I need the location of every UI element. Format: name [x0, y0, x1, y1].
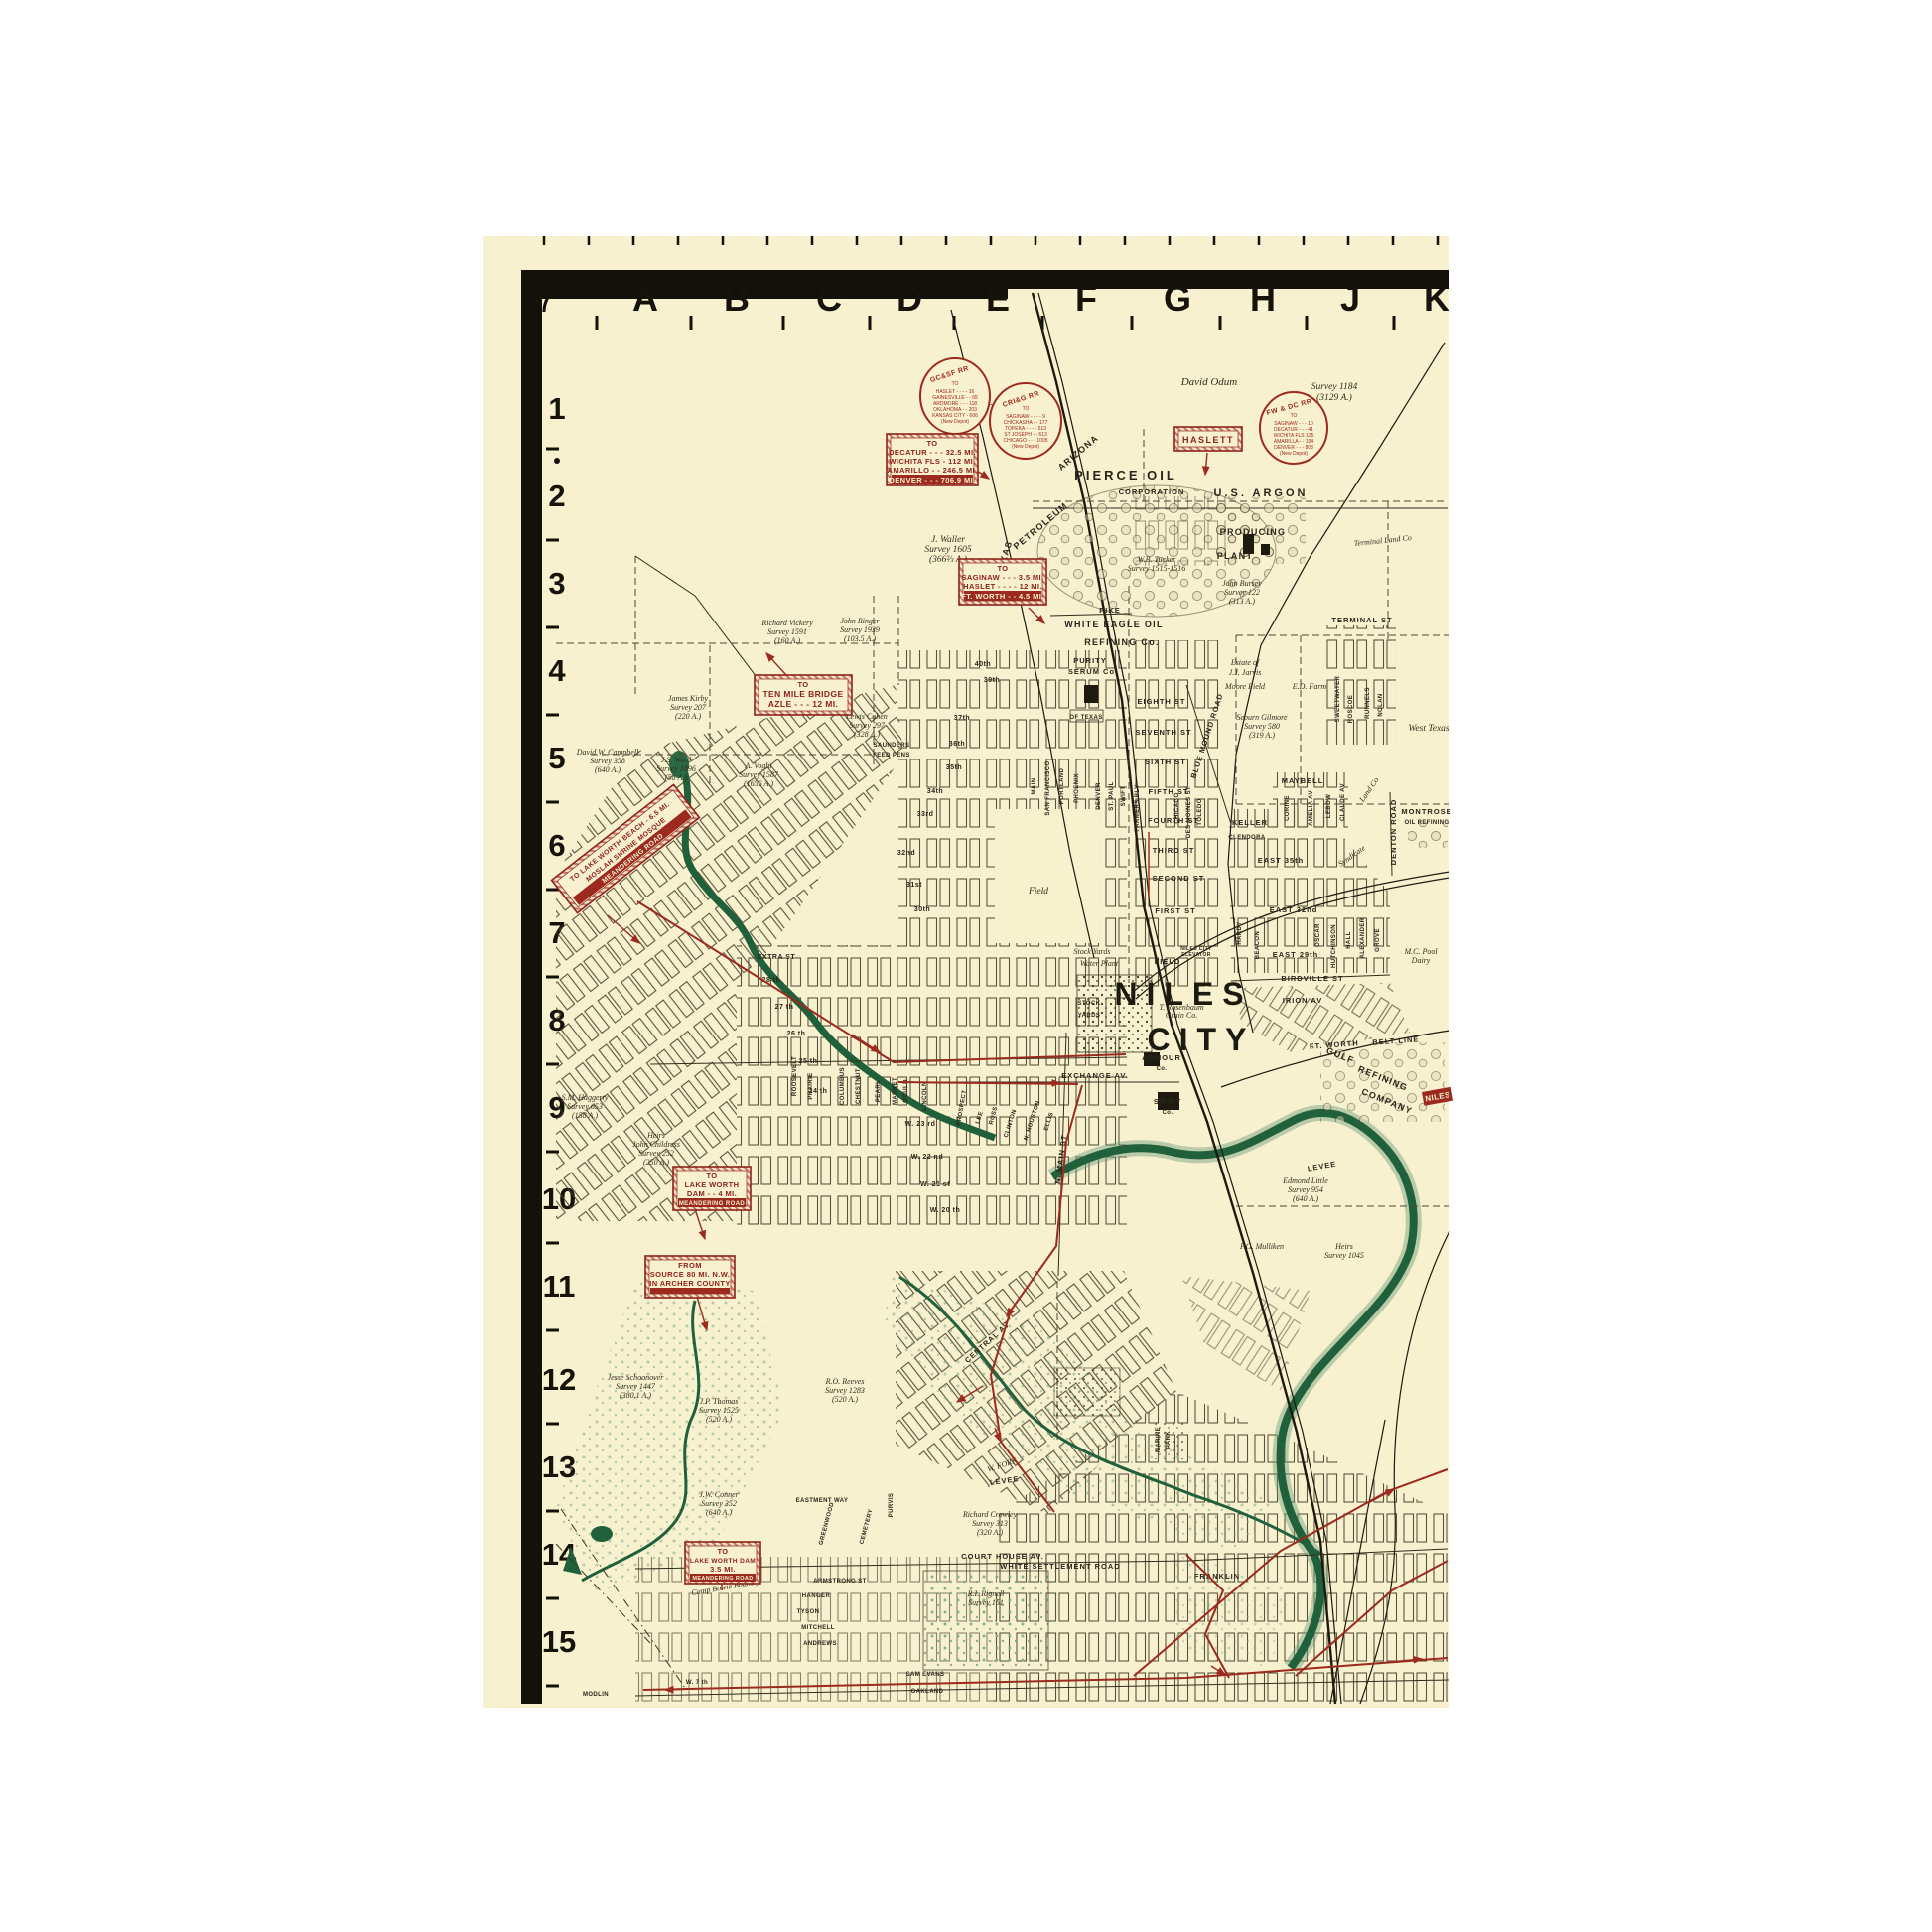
grid-number: 5	[548, 741, 565, 775]
grid-letter: G	[1164, 278, 1191, 319]
grid-number: 3	[548, 566, 565, 601]
label-des-moines: DES MOINES ST	[1186, 786, 1192, 838]
label-roosevelt: ROOSEVELT	[792, 1056, 798, 1096]
label-us-argon: U.S. ARGON	[1214, 487, 1309, 499]
label-city: CITY	[1148, 1022, 1256, 1057]
label-yards: YARDS	[1078, 1013, 1100, 1019]
label-purity: PURITY	[1073, 656, 1107, 665]
label-40th: 40th	[975, 661, 991, 668]
label-second-st: SECOND ST	[1153, 874, 1205, 883]
label-30th: 30th	[914, 906, 930, 913]
pond	[591, 1526, 613, 1542]
grid-number: 1	[548, 391, 565, 426]
label-purvis: PURVIS	[889, 1493, 895, 1518]
label-w-20th: W. 20 th	[930, 1207, 960, 1214]
svg-text:AMARILLO - - 246.5 MI.: AMARILLO - - 246.5 MI.	[888, 466, 978, 475]
grid-letter: F	[1075, 278, 1097, 319]
sign-river-source: FROM SOURCE 80 MI. N.W. IN ARCHER COUNTY	[645, 1256, 735, 1298]
label-amelia: AMELIA AV	[1309, 790, 1314, 826]
label-west-texas: West Texas	[1408, 724, 1449, 734]
label-eastment-way: EASTMENT WAY	[796, 1498, 849, 1504]
label-36th: 36th	[949, 741, 965, 748]
label-of-texas: OF TEXAS	[1069, 715, 1102, 721]
svg-text:SAGINAW - - - 3.5 MI.: SAGINAW - - - 3.5 MI.	[962, 573, 1044, 582]
label-35th: 35th	[946, 764, 962, 771]
grid-letter: A	[632, 278, 658, 319]
label-armstrong-st: ARMSTRONG ST	[813, 1579, 866, 1585]
label-swift-co: Co.	[1163, 1110, 1173, 1116]
svg-text:IN ARCHER COUNTY: IN ARCHER COUNTY	[649, 1279, 731, 1288]
svg-text:DAM - - 4 MI.: DAM - - 4 MI.	[687, 1189, 737, 1198]
screenshot-root: A B C D E F G H J K 1 2 3 4 5 6 7 8 9 10…	[0, 0, 1932, 1932]
label-main-av: MAIN	[1032, 778, 1037, 795]
label-oscar: OSCAR	[1315, 923, 1321, 947]
grid-letter: B	[724, 278, 750, 319]
label-feed-pens: FEED PENS	[873, 753, 910, 759]
svg-text:TO: TO	[952, 381, 959, 387]
label-hanger: HANGER	[802, 1593, 831, 1599]
label-eighth-st: EIGHTH ST	[1137, 697, 1185, 706]
label-stock: STOCK	[1078, 1001, 1101, 1007]
label-st-paul: ST. PAUL	[1109, 781, 1115, 810]
label-east-32nd: EAST 32nd	[1270, 905, 1318, 914]
label-armour-co: Co.	[1157, 1066, 1168, 1072]
sign-lake-worth-dam-4: TO LAKE WORTH DAM - - 4 MI. MEANDERING R…	[673, 1167, 751, 1210]
label-lincoln: LINCOLN	[922, 1081, 928, 1110]
label-denver-av: DENVER	[1096, 782, 1102, 810]
label-modlin: MODLIN	[583, 1692, 609, 1698]
label-nolan: NOLAN	[1378, 693, 1384, 716]
label-chicago-av: CHICAGO	[1174, 792, 1180, 823]
label-david-odum: David Odum	[1180, 376, 1238, 388]
circle-crig: CRI&G RR TO SAGINAW - - - - 9CHICKASHA -…	[990, 383, 1061, 459]
label-37th: 37th	[954, 715, 970, 722]
svg-text:TO: TO	[1023, 406, 1030, 412]
label-andrews: ANDREWS	[803, 1641, 837, 1647]
label-sixth-st: SIXTH ST	[1145, 758, 1186, 766]
svg-text:LAKE WORTH: LAKE WORTH	[685, 1180, 740, 1189]
label-montrose: MONTROSE	[1401, 807, 1451, 816]
svg-text:DENVER - - - 706.9 MI.: DENVER - - - 706.9 MI.	[889, 476, 975, 484]
label-w-21st: W. 21 st	[920, 1181, 950, 1188]
label-w-22nd: W. 22 nd	[911, 1154, 943, 1161]
label-26th: 26 th	[787, 1031, 806, 1037]
sign-lake-worth-dam-35: TO LAKE WORTH DAM 3.5 MI. MEANDERING ROA…	[685, 1542, 760, 1584]
label-27th: 27 th	[775, 1004, 794, 1011]
label-field-east: FIELD	[1155, 957, 1181, 966]
label-survey-1184: Survey 1184(3129 A.)	[1311, 382, 1358, 403]
label-seventh-st: SEVENTH ST	[1135, 728, 1191, 737]
label-w-23rd: W. 23 rd	[905, 1121, 936, 1128]
label-field-west: Field	[1028, 887, 1048, 897]
label-white-eagle-refining: REFINING Co.	[1084, 637, 1160, 647]
label-water-plant: Water Plant	[1080, 959, 1119, 968]
sign-saginaw: TO SAGINAW - - - 3.5 MI. HASLET - - - - …	[959, 559, 1046, 605]
label-toledo: TOLEDO	[1197, 798, 1203, 825]
grid-letter: D	[897, 278, 922, 319]
grid-letter: J	[1340, 278, 1360, 319]
grid-number: 15	[542, 1624, 576, 1659]
label-sam-evans: SAM EVANS	[906, 1672, 945, 1678]
label-rignell-survey: R.I. RignellSurvey 151	[967, 1589, 1005, 1607]
label-swift: SWIFT	[1154, 1097, 1181, 1106]
svg-text:FROM: FROM	[678, 1261, 702, 1270]
grid-letter: K	[1424, 278, 1449, 319]
label-grove: GROVE	[1375, 928, 1381, 952]
svg-text:LAKE WORTH DAM: LAKE WORTH DAM	[690, 1558, 756, 1565]
svg-text:MEANDERING ROAD: MEANDERING ROAD	[692, 1576, 753, 1582]
label-terminal-st: TERMINAL ST	[1331, 616, 1392, 624]
label-columbus: COLUMBUS	[840, 1067, 846, 1105]
label-33rd: 33rd	[917, 811, 934, 818]
circle-gcsf: GC&SF RR TO HASLET - - - - 16GAINESVILLE…	[920, 358, 990, 434]
label-extra-st: EXTRA ST	[758, 954, 796, 961]
grid-letter: E	[986, 278, 1010, 319]
label-maybell: MAYBELL	[1282, 776, 1324, 785]
label-ed-farm: E.D. Farm	[1292, 682, 1327, 691]
label-third-st: THIRD ST	[1153, 846, 1195, 855]
svg-text:WICHITA FLS - 112 MI.: WICHITA FLS - 112 MI.	[889, 457, 975, 466]
svg-text:FT. WORTH - - 4.5 MI.: FT. WORTH - - 4.5 MI.	[961, 592, 1043, 601]
courthouse-park	[923, 1571, 1048, 1670]
label-market: MARKET	[893, 1077, 898, 1105]
label-w-7th: W. 7 th	[686, 1680, 708, 1686]
svg-text:MEANDERING ROAD: MEANDERING ROAD	[679, 1201, 746, 1207]
svg-text:AZLE - - - 12 MI.: AZLE - - - 12 MI.	[768, 699, 839, 709]
grid-letter: H	[1250, 278, 1276, 319]
label-phoenix: PHOENIX	[1074, 773, 1080, 803]
label-white-settlement-road: WHITE SETTLEMENT ROAD	[1000, 1562, 1120, 1571]
grid-number: 6	[548, 828, 565, 863]
label-niles-elevator: NILES CITYELEVATOR	[1180, 946, 1212, 958]
svg-text:HASLET - - - - 12 MI.: HASLET - - - - 12 MI.	[963, 582, 1042, 591]
svg-text:TO: TO	[997, 564, 1008, 573]
label-court-house-av: COURT HOUSE AV.	[961, 1552, 1043, 1561]
label-mitchell: MITCHELL	[801, 1625, 835, 1631]
svg-text:TO: TO	[706, 1172, 717, 1180]
label-farmers-blv: FARMERS BLV	[1135, 785, 1141, 832]
label-east-35th: EAST 35th	[1258, 856, 1305, 865]
circle-fwdc: FW & DC RR TO SAGINAW - - - 10DECATUR - …	[1260, 392, 1327, 464]
label-east-29th: EAST 29th	[1273, 950, 1319, 959]
label-hutchinson: HUTCHINSON	[1331, 924, 1337, 968]
label-mulliken: F.G. Mulliken	[1239, 1242, 1284, 1251]
label-white-eagle: WHITE EAGLE OIL	[1064, 620, 1164, 629]
label-39th: 39th	[984, 677, 1000, 684]
svg-text:TO: TO	[797, 680, 808, 689]
label-pierce-oil: PIERCE OIL	[1074, 468, 1177, 483]
label-prairie: PRAIRIE	[808, 1072, 814, 1099]
label-tyson: TYSON	[797, 1609, 820, 1615]
label-san-francisco: SAN FRANCISCO	[1045, 760, 1051, 815]
sign-ten-mile-bridge: TO TEN MILE BRIDGE AZLE - - - 12 MI.	[755, 675, 852, 715]
svg-text:TO: TO	[717, 1547, 728, 1556]
label-keller: KELLER	[1232, 818, 1268, 827]
label-hardy: HARDY	[1237, 921, 1243, 944]
grid-number: 4	[548, 653, 566, 688]
label-niles: NILES	[1114, 976, 1252, 1012]
label-plant: PLANT	[1217, 551, 1254, 561]
grid-number: 12	[542, 1362, 576, 1397]
label-25th: 25 th	[799, 1058, 818, 1065]
label-stock-yards-italic: Stock Yards	[1074, 947, 1111, 956]
label-irion-av: IRION AV	[1283, 996, 1323, 1005]
label-34th: 34th	[927, 788, 943, 795]
label-denton-road: DENTON ROAD	[1389, 799, 1398, 866]
label-armour: ARMOUR	[1142, 1053, 1181, 1062]
grid-dot-tick	[554, 458, 560, 464]
grid-number: 11	[543, 1269, 576, 1304]
sign-decatur: TO DECATUR - - - 32.5 MI. WICHITA FLS - …	[887, 434, 978, 485]
label-saunders: SAUNDERS	[874, 743, 910, 749]
label-montrose-refining: OIL REFINING	[1404, 820, 1449, 826]
city-park	[1054, 1368, 1120, 1416]
label-runnels: RUNNELS	[1365, 687, 1371, 719]
label-hall: HALL	[1346, 931, 1352, 949]
label-marine: MARINE	[1156, 1427, 1162, 1452]
label-32nd: 32nd	[897, 850, 915, 857]
label-portland: PORTLAND	[1059, 767, 1065, 804]
vintage-map-canvas: A B C D E F G H J K 1 2 3 4 5 6 7 8 9 10…	[0, 0, 1932, 1932]
svg-text:TO: TO	[926, 439, 937, 448]
grid-number: 2	[548, 479, 565, 513]
label-claude: CLAUDE AV	[1340, 783, 1346, 821]
label-pearl: PEARL	[876, 1080, 882, 1102]
label-sweetwater: SWEETWATER	[1335, 675, 1341, 722]
margin-tick-marks	[544, 236, 1438, 245]
grid-letter: C	[816, 278, 842, 319]
label-fifth-st: FIFTH ST	[1149, 787, 1189, 796]
svg-text:TO: TO	[1291, 413, 1298, 419]
label-31st: 31st	[906, 882, 922, 889]
label-franklin: FRANKLIN	[1194, 1572, 1240, 1581]
svg-text:DECATUR - - - 32.5 MI.: DECATUR - - - 32.5 MI.	[889, 448, 976, 457]
svg-text:TEN MILE BRIDGE: TEN MILE BRIDGE	[762, 689, 843, 699]
label-beacon: BEACON	[1255, 931, 1261, 959]
label-first-st: FIRST ST	[1155, 906, 1195, 915]
label-oakland: OAKLAND	[911, 1689, 944, 1695]
label-roscoe: ROSCOE	[1348, 695, 1354, 723]
svg-text:HASLETT: HASLETT	[1182, 435, 1234, 445]
label-purity-serum: SERUM Co.	[1068, 667, 1118, 676]
label-exchange-av: EXCHANGE AV.	[1061, 1071, 1129, 1080]
label-birdville-st: BIRDVILLE ST	[1281, 974, 1343, 983]
label-chestnut: CHESTNUT	[856, 1068, 862, 1104]
sign-haslett: HASLETT	[1174, 427, 1242, 451]
label-clendora: CLENDORA	[1228, 835, 1265, 841]
svg-text:SOURCE 80 MI. N.W.: SOURCE 80 MI. N.W.	[650, 1270, 731, 1279]
label-swift-av: SWIFT	[1121, 786, 1127, 807]
label-marine-park: PARK	[1166, 1431, 1172, 1449]
svg-text:3.5 MI.: 3.5 MI.	[710, 1565, 736, 1574]
label-producing: PRODUCING	[1220, 527, 1287, 537]
label-ringer-survey: John RingerSurvey 1939(103.5 A.)	[840, 617, 880, 643]
label-corine: CORINE	[1285, 795, 1291, 821]
purity-serum-building	[1084, 685, 1098, 703]
label-pike-street: PIKE	[1099, 606, 1121, 615]
label-pierce-corporation: CORPORATION	[1119, 487, 1185, 496]
label-lebow: LEBOW	[1326, 794, 1332, 818]
label-alexander: ALEXANDER	[1360, 917, 1366, 958]
